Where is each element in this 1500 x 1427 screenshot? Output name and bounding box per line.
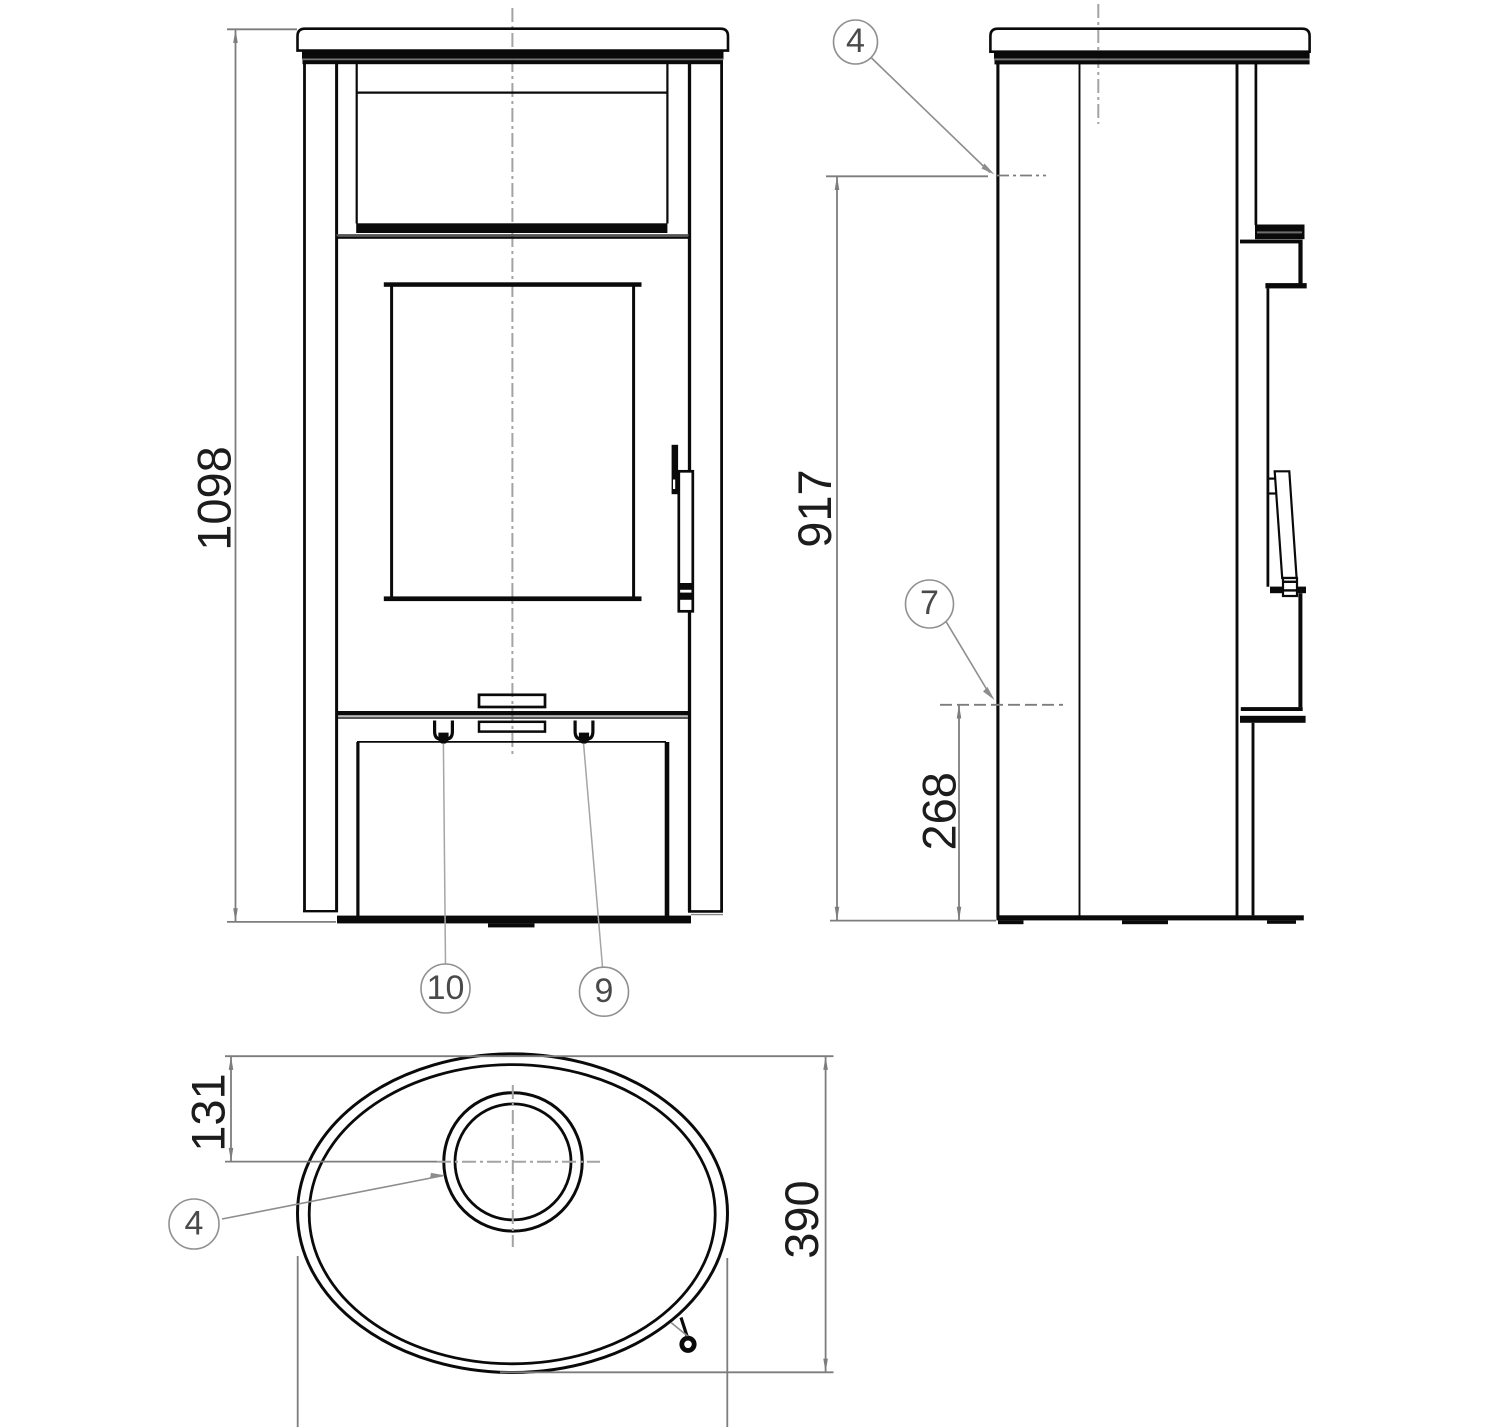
svg-text:7: 7 xyxy=(920,584,939,622)
svg-text:917: 917 xyxy=(788,469,841,547)
svg-text:390: 390 xyxy=(775,1180,828,1258)
svg-text:268: 268 xyxy=(912,772,965,850)
svg-text:131: 131 xyxy=(181,1073,234,1151)
svg-text:10: 10 xyxy=(427,969,465,1007)
svg-text:4: 4 xyxy=(185,1204,204,1242)
svg-text:4: 4 xyxy=(846,22,865,60)
svg-text:9: 9 xyxy=(595,972,614,1010)
svg-text:1098: 1098 xyxy=(187,446,240,551)
